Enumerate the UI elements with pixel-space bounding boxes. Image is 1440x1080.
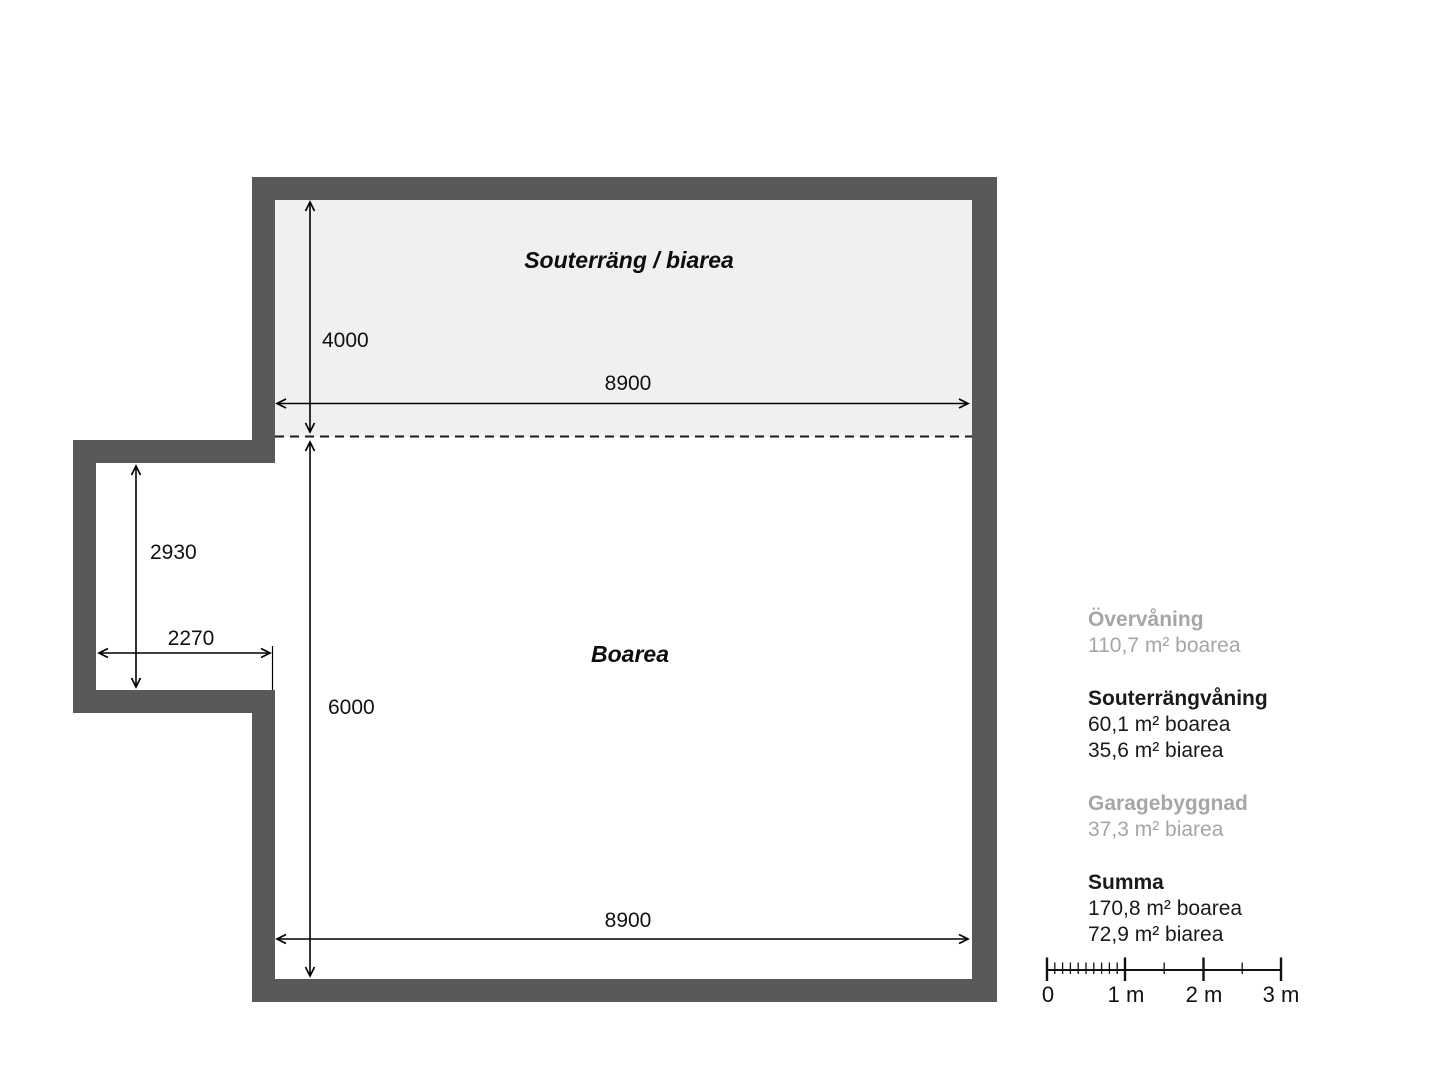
- dim-label-upper-height: 4000: [322, 329, 369, 352]
- scale-label-2m: 2 m: [1186, 982, 1223, 1007]
- legend-group-line: 170,8 m² boarea: [1088, 896, 1388, 922]
- dim-label-lower-width: 8900: [605, 909, 652, 932]
- scale-label-0: 0: [1042, 982, 1054, 1007]
- scale-label-3m: 3 m: [1263, 982, 1300, 1007]
- legend-group-title: Souterrängvåning: [1088, 686, 1388, 712]
- legend-group-line: 37,3 m² biarea: [1088, 817, 1388, 843]
- scale-label-1m: 1 m: [1108, 982, 1145, 1007]
- dim-label-bump-width: 2270: [168, 627, 215, 650]
- legend-group-title: Garagebyggnad: [1088, 791, 1388, 817]
- souterrang-area-label: Souterräng / biarea: [524, 247, 734, 273]
- legend-group-garagebyggnad: Garagebyggnad 37,3 m² biarea: [1088, 791, 1388, 843]
- dim-label-upper-width: 8900: [605, 372, 652, 395]
- area-summary: Övervåning 110,7 m² boarea Souterrängvån…: [1088, 607, 1388, 975]
- legend-group-line: 110,7 m² boarea: [1088, 633, 1388, 659]
- dim-label-bump-height: 2930: [150, 541, 197, 564]
- legend-group-line: 60,1 m² boarea: [1088, 712, 1388, 738]
- legend-group-line: 35,6 m² biarea: [1088, 738, 1388, 764]
- legend-group-line: 72,9 m² biarea: [1088, 922, 1388, 948]
- dim-label-lower-height: 6000: [328, 696, 375, 719]
- legend-group-summa: Summa 170,8 m² boarea 72,9 m² biarea: [1088, 870, 1388, 948]
- floorplan-page: Souterräng / biarea Boarea 4000 8900 600…: [0, 0, 1440, 1080]
- legend-group-souterrangvaning: Souterrängvåning 60,1 m² boarea 35,6 m² …: [1088, 686, 1388, 764]
- boarea-label: Boarea: [591, 641, 669, 667]
- legend-group-title: Summa: [1088, 870, 1388, 896]
- legend-group-title: Övervåning: [1088, 607, 1388, 633]
- legend-group-overvaning: Övervåning 110,7 m² boarea: [1088, 607, 1388, 659]
- souterrang-shaded-area: [275, 200, 972, 437]
